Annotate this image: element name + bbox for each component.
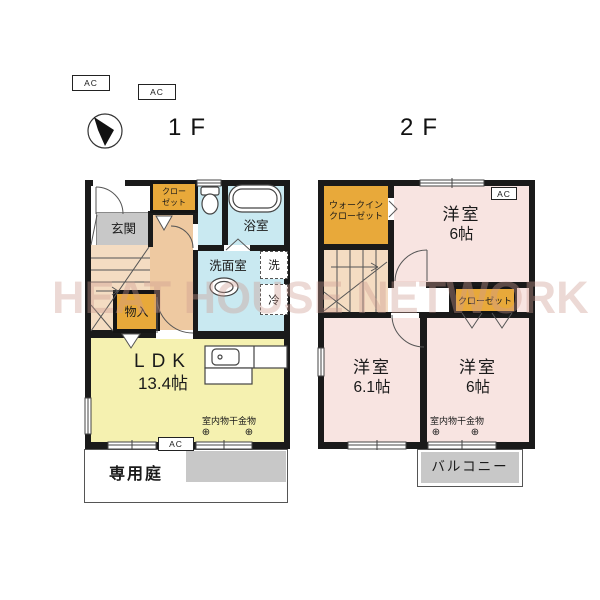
closet-label: クロー <box>162 186 186 197</box>
ac-unit-box-1f: AC <box>158 437 194 451</box>
floorplan-canvas: AC AC 1F 2F クロー <box>0 0 600 600</box>
bedroom-left-label: 洋室 6.1帖 <box>324 352 420 402</box>
laundry-hook-mark: ⊕ <box>200 427 212 439</box>
bedroom-right-label: 洋室 6帖 <box>427 352 529 402</box>
ac-label: AC <box>169 439 183 449</box>
garden-terrace-deck <box>186 451 286 482</box>
wall <box>193 331 290 339</box>
ac-label: AC <box>84 78 98 88</box>
floor2-title: 2F <box>400 114 446 142</box>
wall <box>318 180 535 186</box>
ac-unit-box-top-1: AC <box>72 75 110 91</box>
closet-1f: クロー ゼット <box>150 181 198 213</box>
laundry-hook-mark: ⊕ <box>430 427 442 439</box>
room-name: 洋室 <box>443 204 481 225</box>
floor1-title: 1F <box>168 114 214 142</box>
ac-label: AC <box>150 87 164 97</box>
ldk-label: LDK 13.4帖 <box>108 346 218 398</box>
room-size: 6帖 <box>466 378 490 397</box>
washer-label: 洗 <box>268 257 280 273</box>
closet-label: ゼット <box>162 197 186 208</box>
watermark-text: HEAT HOUSE NETWORK <box>52 272 589 324</box>
wic-line2: クローゼット <box>329 211 383 222</box>
room-size: 6帖 <box>449 225 473 244</box>
bath-label: 浴室 <box>228 216 284 238</box>
wic-line1: ウォークイン <box>329 200 383 211</box>
room-name: 洋室 <box>459 357 497 378</box>
compass-north-icon <box>84 110 126 157</box>
balcony-label: バルコニー <box>417 452 523 482</box>
garden-label: 専用庭 <box>100 463 172 487</box>
ac-unit-box-top-2: AC <box>138 84 176 100</box>
laundry-hook-mark: ⊕ <box>469 427 481 439</box>
entrance-label: 玄関 <box>97 213 150 247</box>
room-name: 洋室 <box>353 357 391 378</box>
bedroom-top-label: 洋室 6帖 <box>394 200 529 248</box>
ldk-size: 13.4帖 <box>138 373 188 394</box>
ac-label: AC <box>497 189 511 199</box>
ac-unit-box-2f: AC <box>491 187 517 200</box>
room-toilet <box>198 186 222 245</box>
room-size: 6.1帖 <box>353 378 390 397</box>
walkin-closet-label: ウォークイン クローゼット <box>324 194 388 228</box>
laundry-hardware-label-2f: 室内物干金物 <box>416 416 498 428</box>
wall <box>324 244 388 250</box>
laundry-hook-mark: ⊕ <box>243 427 255 439</box>
ldk-name: LDK <box>134 350 192 374</box>
wall <box>420 312 427 449</box>
